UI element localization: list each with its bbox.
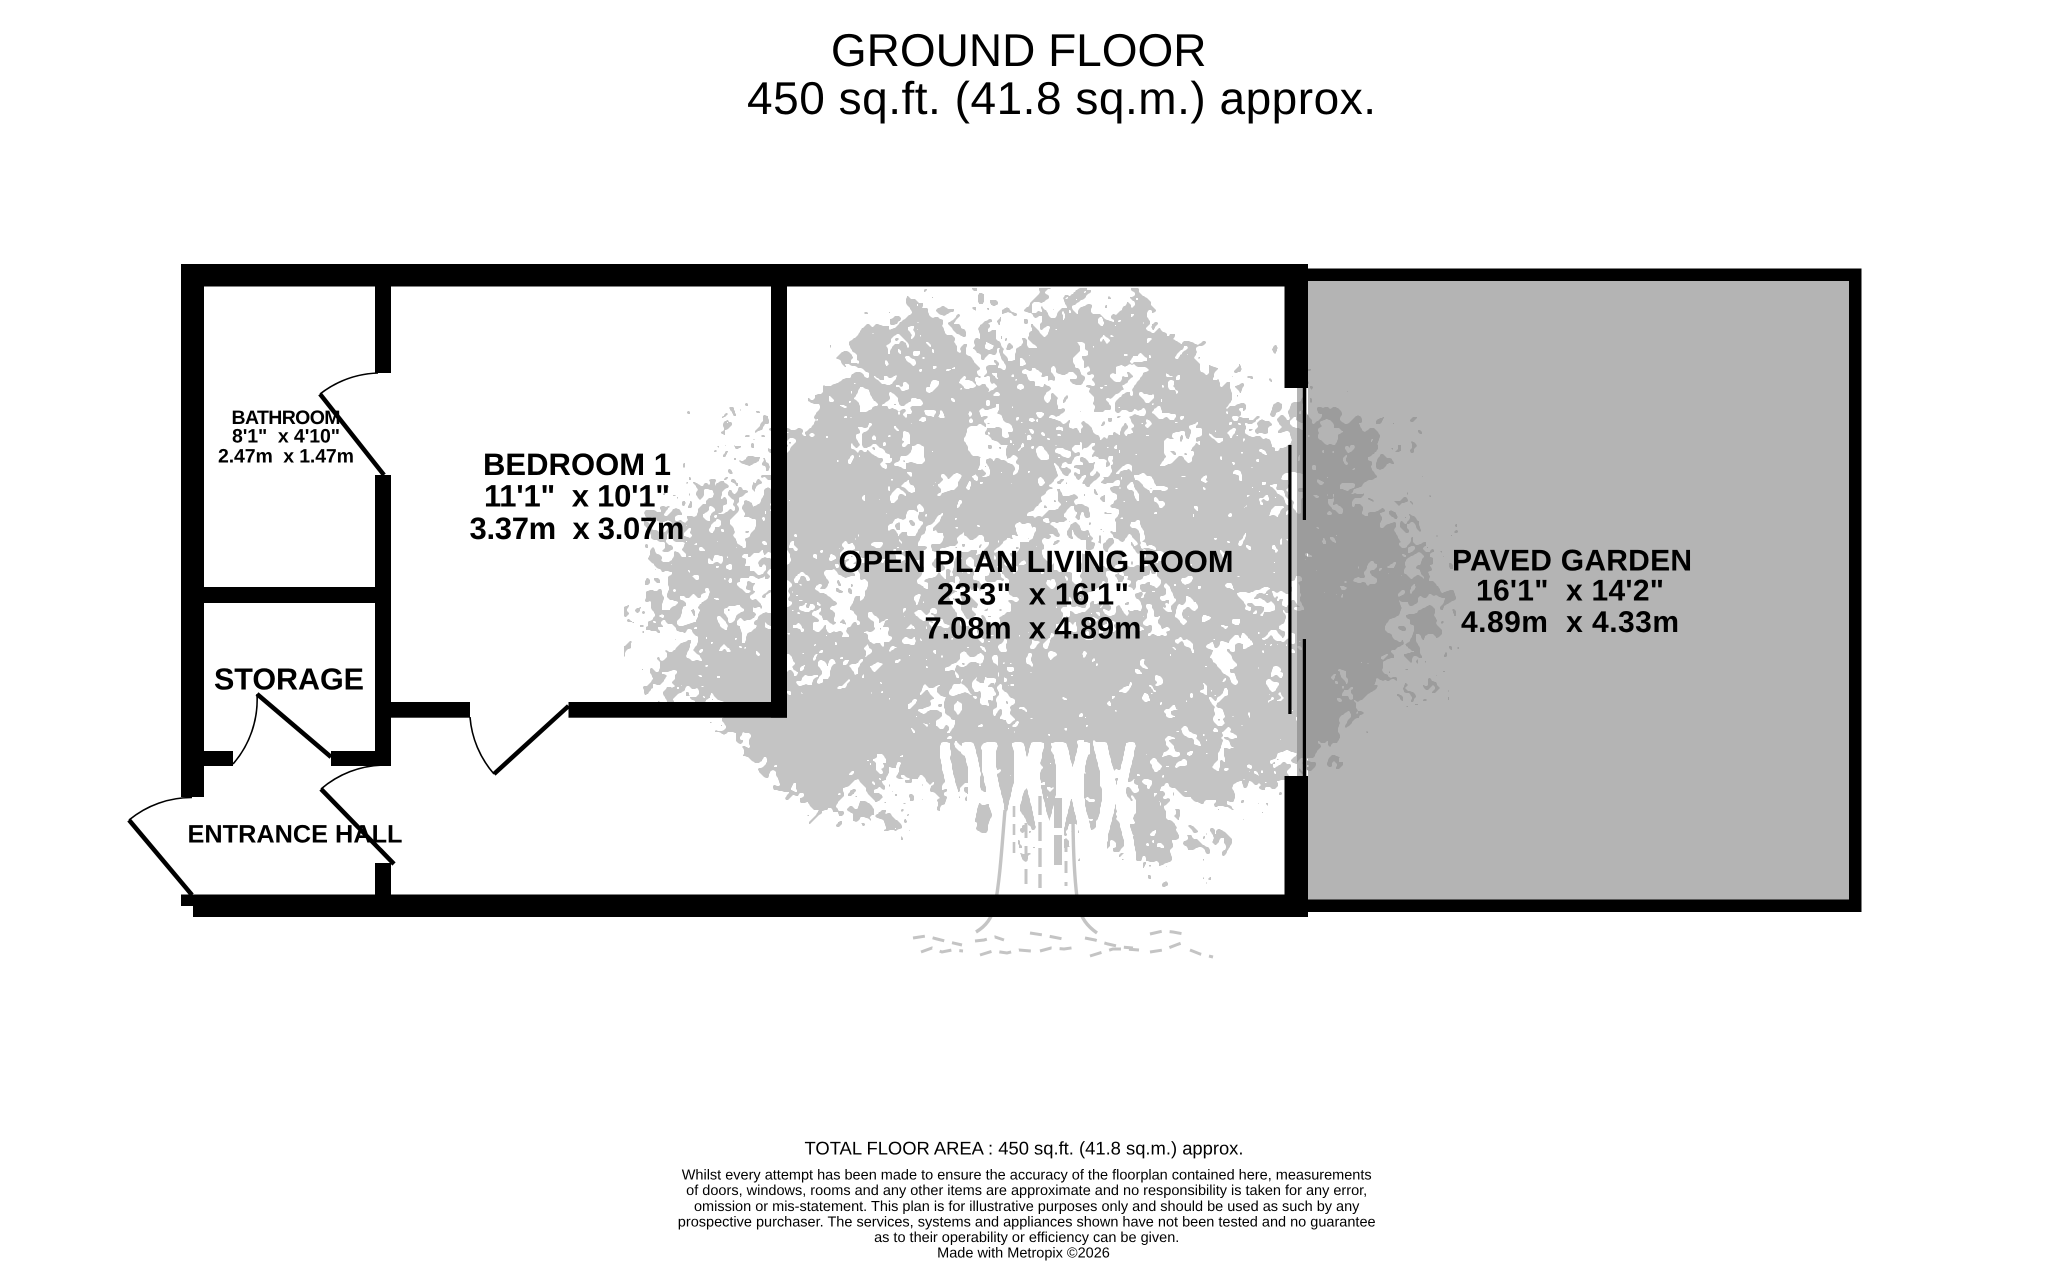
svg-text:PAVED GARDEN: PAVED GARDEN xyxy=(1452,545,1692,578)
svg-text:ENTRANCE HALL: ENTRANCE HALL xyxy=(188,820,403,848)
svg-text:450 sq.ft. (41.8 sq.m.) approx: 450 sq.ft. (41.8 sq.m.) approx. xyxy=(747,72,1376,124)
svg-text:prospective purchaser. The ser: prospective purchaser. The services, sys… xyxy=(678,1215,1376,1231)
svg-text:STORAGE: STORAGE xyxy=(214,662,364,696)
svg-text:11'1" x 10'1": 11'1" x 10'1" xyxy=(484,478,670,513)
svg-text:OPEN PLAN LIVING ROOM: OPEN PLAN LIVING ROOM xyxy=(839,544,1234,579)
svg-text:omission or mis-statement. Thi: omission or mis-statement. This plan is … xyxy=(694,1199,1360,1215)
svg-text:GROUND FLOOR: GROUND FLOOR xyxy=(831,24,1207,76)
svg-text:23'3" x 16'1": 23'3" x 16'1" xyxy=(937,576,1129,611)
svg-text:2.47m x 1.47m: 2.47m x 1.47m xyxy=(218,446,354,468)
svg-text:16'1" x 14'2": 16'1" x 14'2" xyxy=(1476,574,1664,607)
svg-text:4.89m x 4.33m: 4.89m x 4.33m xyxy=(1461,606,1679,639)
svg-text:TOTAL FLOOR AREA : 450 sq.ft.: TOTAL FLOOR AREA : 450 sq.ft. (41.8 sq.m… xyxy=(805,1138,1244,1159)
svg-text:3.37m x 3.07m: 3.37m x 3.07m xyxy=(470,511,685,546)
svg-text:7.08m x 4.89m: 7.08m x 4.89m xyxy=(925,611,1142,646)
svg-text:Made with Metropix ©2026: Made with Metropix ©2026 xyxy=(937,1246,1110,1262)
svg-text:8'1" x 4'10": 8'1" x 4'10" xyxy=(232,426,340,448)
svg-text:BEDROOM 1: BEDROOM 1 xyxy=(483,447,671,482)
svg-text:of doors, windows, rooms and a: of doors, windows, rooms and any other i… xyxy=(686,1183,1367,1199)
svg-text:Whilst every attempt has been: Whilst every attempt has been made to en… xyxy=(682,1168,1372,1184)
svg-text:as to their operability or eff: as to their operability or efficiency ca… xyxy=(874,1230,1179,1246)
